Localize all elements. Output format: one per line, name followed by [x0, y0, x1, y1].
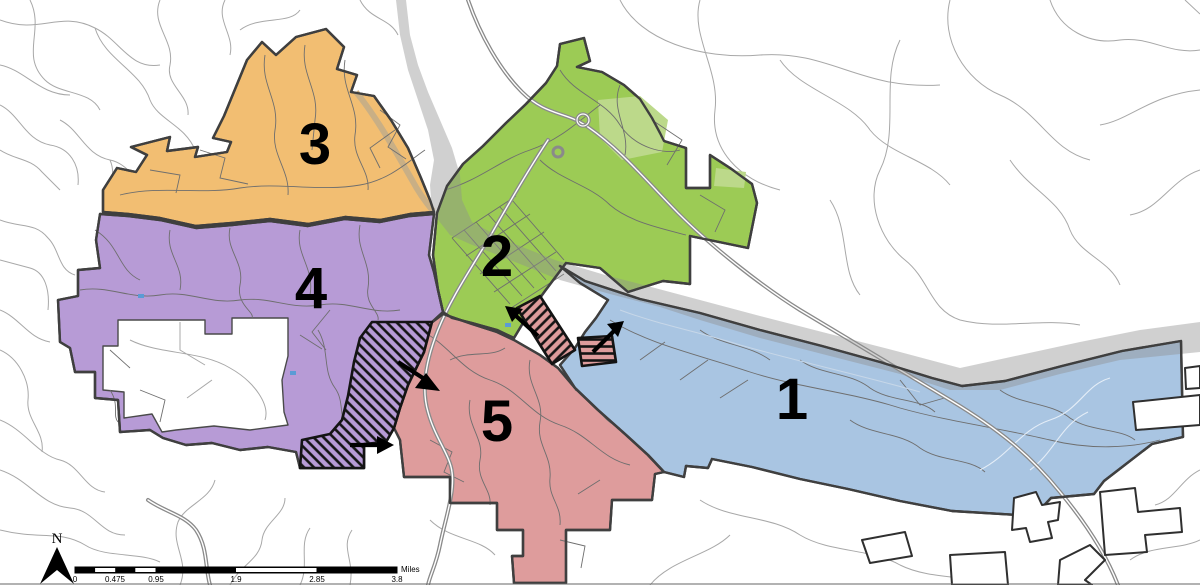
scale-tick: 0.475: [105, 575, 126, 584]
scale-unit-label: Miles: [401, 565, 420, 574]
hatched-area-downtown-east: [578, 336, 616, 366]
district-4-label: 4: [295, 256, 327, 321]
district-1-label: 1: [776, 367, 808, 432]
district-map: 3 2 4 5 1 N 0 0.475 0.95 1.9 2.85 3.8 Mi…: [0, 0, 1200, 585]
scale-bar-segment: [95, 568, 115, 572]
boundary-fragment: [1185, 366, 1200, 389]
pond: [138, 294, 144, 298]
map-canvas: 3 2 4 5 1 N 0 0.475 0.95 1.9 2.85 3.8 Mi…: [0, 0, 1200, 585]
scale-bar-segment: [135, 568, 155, 572]
pond: [290, 371, 296, 375]
district-2-label: 2: [481, 224, 513, 289]
north-arrow-label: N: [52, 531, 63, 547]
scale-tick: 0: [73, 575, 78, 584]
unincorporated-enclave: [103, 318, 288, 432]
scale-tick: 0.95: [148, 575, 164, 584]
scale-tick: 3.8: [391, 575, 403, 584]
scale-bar-segment: [236, 568, 317, 572]
scale-tick: 1.9: [230, 575, 242, 584]
boundary-fragment: [950, 552, 1008, 585]
district-5-label: 5: [481, 389, 513, 454]
scale-tick: 2.85: [309, 575, 325, 584]
boundary-fragment: [1133, 395, 1200, 430]
pond: [505, 323, 511, 327]
district-3-label: 3: [299, 112, 331, 177]
